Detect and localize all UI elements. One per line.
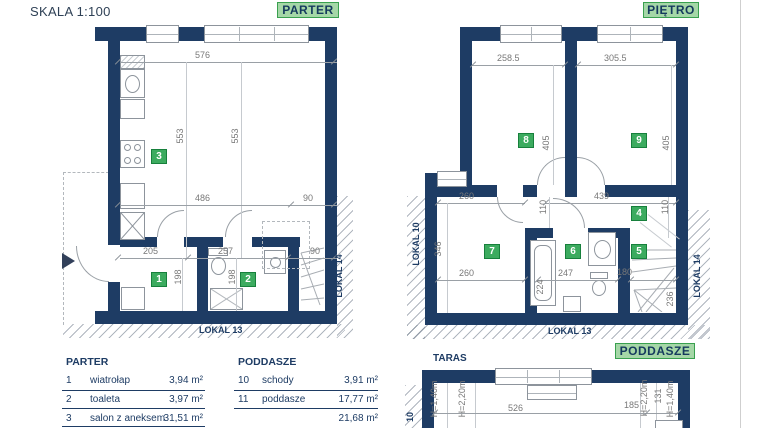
kitchen-sink <box>120 69 145 98</box>
door-arc-room2 <box>225 210 252 237</box>
wardrobe-crossed <box>120 212 145 240</box>
room-badge-6: 6 <box>565 244 581 259</box>
attic-fixture-cropped <box>655 420 683 428</box>
dim-text: 405 <box>541 126 551 160</box>
wall-pietro-left-upper <box>460 41 472 173</box>
door-arc-room7 <box>497 197 523 223</box>
dim-text: 260 <box>459 268 474 278</box>
lokal-14-label-parter: LOKAL 14 <box>334 250 344 302</box>
room-badge-7: 7 <box>484 244 500 259</box>
dim-line <box>120 205 337 206</box>
room-badge-3: 3 <box>151 149 167 164</box>
dim-text: 205 <box>143 246 158 256</box>
dim-text: 439 <box>594 191 609 201</box>
lokal-10-label-poddasze: 10 <box>405 409 415 425</box>
dim-line <box>630 280 676 281</box>
vestibule-cabinet <box>121 287 145 310</box>
wall-hall-c <box>605 185 688 197</box>
legend-row-area: 31,51 m² <box>140 413 203 424</box>
legend-row-number: 2 <box>66 394 72 405</box>
legend-row-name: wiatrołap <box>90 375 130 386</box>
taras-label: TARAS <box>433 354 467 364</box>
window-poddasze-sill <box>527 385 577 400</box>
kitchen-dishwasher <box>120 99 145 119</box>
legend-parter-title: PARTER <box>66 356 108 368</box>
dim-line <box>577 65 676 66</box>
dim-line <box>447 203 448 313</box>
wall-pietro-bottom <box>425 313 688 325</box>
window-parter-1 <box>146 25 179 43</box>
window-room8 <box>500 25 562 43</box>
dim-line <box>437 280 525 281</box>
dim-text: 198 <box>227 265 237 289</box>
wall-pietro-right <box>676 41 688 325</box>
legend-poddasze-title: PODDASZE <box>238 356 296 368</box>
dim-line <box>472 65 565 66</box>
wall-hall-b <box>523 185 537 197</box>
wall-hall-pier <box>565 185 577 197</box>
height-line <box>475 383 476 428</box>
dim-line <box>537 280 618 281</box>
door-arc-room1 <box>157 210 184 237</box>
legend-row-area: 3,91 m² <box>315 375 378 386</box>
dim-text: 346 <box>433 232 443 266</box>
window-poddasze <box>495 368 592 385</box>
legend-total-area: 21,68 m² <box>315 413 378 424</box>
legend-row-area: 3,94 m² <box>140 375 203 386</box>
porch-dashed-line-h <box>63 172 109 173</box>
parter-title-badge: PARTER <box>277 2 339 18</box>
scale-label: SKALA 1:100 <box>30 4 111 19</box>
dim-text: 553 <box>230 119 240 153</box>
toilet-tank-pietro <box>590 272 608 279</box>
room-badge-1: 1 <box>151 272 167 287</box>
door-arc-room8 <box>537 157 565 185</box>
wall-parter-bottom <box>95 311 337 324</box>
dim-text: 305.5 <box>604 53 627 63</box>
window-room9 <box>597 25 663 43</box>
dim-text: 257 <box>218 246 233 256</box>
dim-text: 110 <box>538 195 548 219</box>
wall-bath-top-a <box>525 228 553 238</box>
height-line <box>447 383 448 428</box>
washer-pietro <box>563 296 581 312</box>
dim-line <box>553 65 554 185</box>
dim-text: 576 <box>195 50 210 60</box>
wall-parter-left-lower <box>108 282 120 311</box>
dim-text: 486 <box>195 193 210 203</box>
dim-text: 131 <box>653 384 663 408</box>
dim-text: 260 <box>459 191 474 201</box>
legend-row-name: poddasze <box>262 394 305 405</box>
page-edge-line <box>740 0 741 428</box>
window-room7 <box>437 171 467 187</box>
dim-text: 247 <box>558 268 573 278</box>
dim-line <box>241 62 242 258</box>
dim-line <box>671 65 672 185</box>
legend-divider <box>62 390 205 391</box>
legend-row-number: 3 <box>66 413 72 424</box>
room-badge-4: 4 <box>631 206 647 221</box>
dim-text: 198 <box>173 265 183 289</box>
poddasze-title-badge: PODDASZE <box>615 343 695 359</box>
pietro-title-badge: PIĘTRO <box>643 2 699 18</box>
room-badge-8: 8 <box>518 133 534 148</box>
dim-text: 553 <box>175 119 185 153</box>
wall-parter-left <box>108 41 120 245</box>
lokal-10-label-pietro: LOKAL 10 <box>411 218 421 270</box>
wall-room1-room2 <box>197 247 208 311</box>
dim-line <box>434 413 678 414</box>
door-arc-entrance <box>76 246 109 282</box>
legend-divider <box>62 426 205 427</box>
dim-line <box>437 203 525 204</box>
room-badge-9: 9 <box>631 133 647 148</box>
legend-divider <box>234 408 378 409</box>
dim-text: 236 <box>665 287 675 311</box>
shower-tray <box>210 288 243 310</box>
legend-row-name: toaleta <box>90 394 120 405</box>
door-arc-room9 <box>577 157 605 185</box>
legend-row-area: 17,77 m² <box>315 394 378 405</box>
dim-line <box>545 203 676 204</box>
dim-line <box>120 62 337 63</box>
dim-text: 258.5 <box>497 53 520 63</box>
legend-row-number: 11 <box>238 394 248 405</box>
kitchen-stove <box>120 140 145 168</box>
legend-divider <box>234 390 378 391</box>
dim-line <box>186 62 187 258</box>
dim-text: 110 <box>660 195 670 219</box>
lokal-14-label-pietro: LOKAL 14 <box>692 250 702 302</box>
dim-text: 185 <box>624 400 639 410</box>
room-badge-2: 2 <box>240 272 256 287</box>
dim-text: 90 <box>303 193 313 203</box>
legend-row-number: 10 <box>238 375 249 386</box>
dim-text: 180 <box>617 267 632 277</box>
room-badge-5: 5 <box>631 244 647 259</box>
legend-divider <box>62 408 205 409</box>
dim-line <box>549 197 550 228</box>
window-parter-2 <box>204 25 309 43</box>
porch-dashed-line-v <box>63 172 64 325</box>
dim-line <box>120 258 337 259</box>
dim-text: 405 <box>661 126 671 160</box>
lokal-13-label-pietro: LOKAL 13 <box>548 326 591 336</box>
toilet-bowl <box>211 257 226 275</box>
legend-row-area: 3,97 m² <box>140 394 203 405</box>
legend-row-name: schody <box>262 375 294 386</box>
lokal-13-label-parter: LOKAL 13 <box>199 325 242 335</box>
legend-row-number: 1 <box>66 375 72 386</box>
dim-text: 526 <box>508 403 523 413</box>
entrance-arrow-icon <box>62 253 75 269</box>
toilet-bowl-pietro <box>592 280 606 296</box>
bathroom-sink <box>588 232 616 266</box>
dim-text: 90 <box>310 246 320 256</box>
floor-plan-sheet: SKALA 1:100 PARTER PIĘTRO <box>0 0 760 428</box>
